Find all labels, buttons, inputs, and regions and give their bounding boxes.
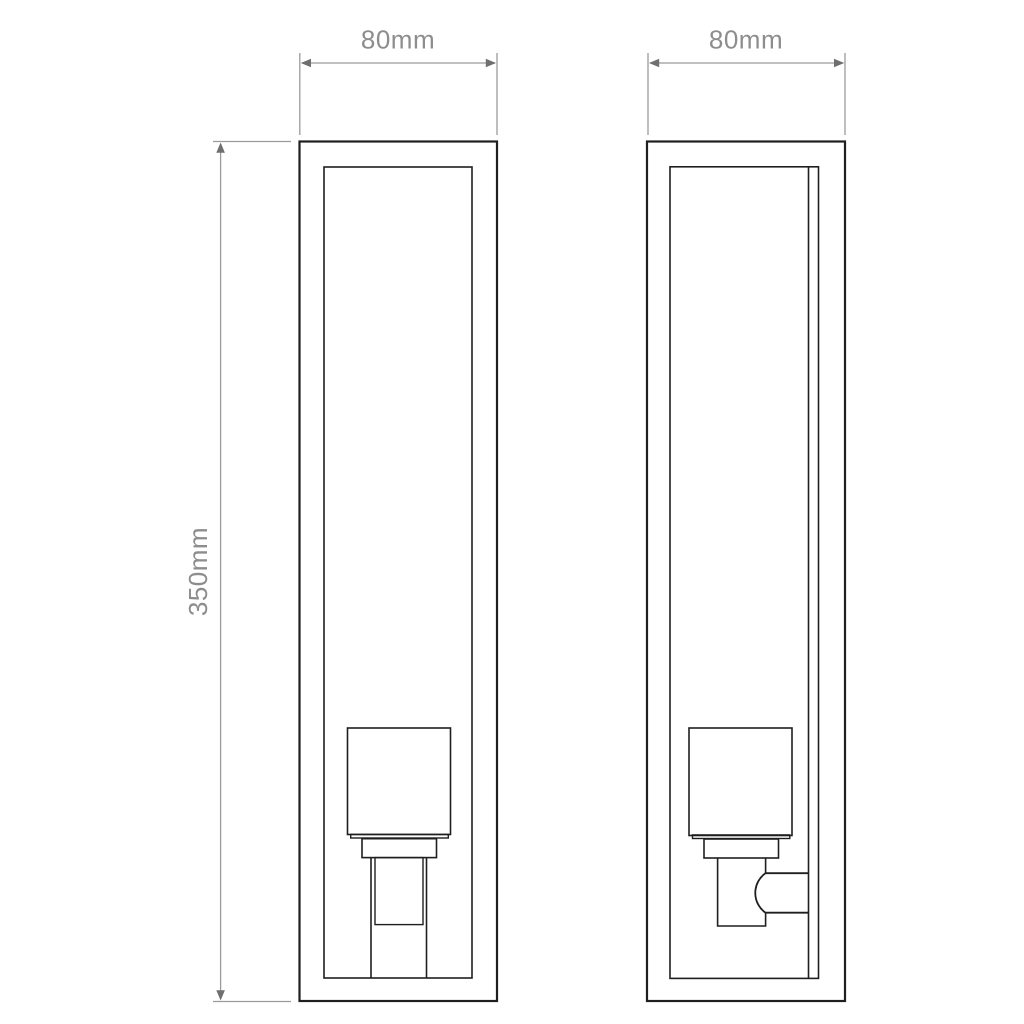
svg-text:80mm: 80mm [361, 25, 435, 55]
svg-text:350mm: 350mm [183, 527, 213, 616]
svg-text:80mm: 80mm [709, 25, 783, 55]
